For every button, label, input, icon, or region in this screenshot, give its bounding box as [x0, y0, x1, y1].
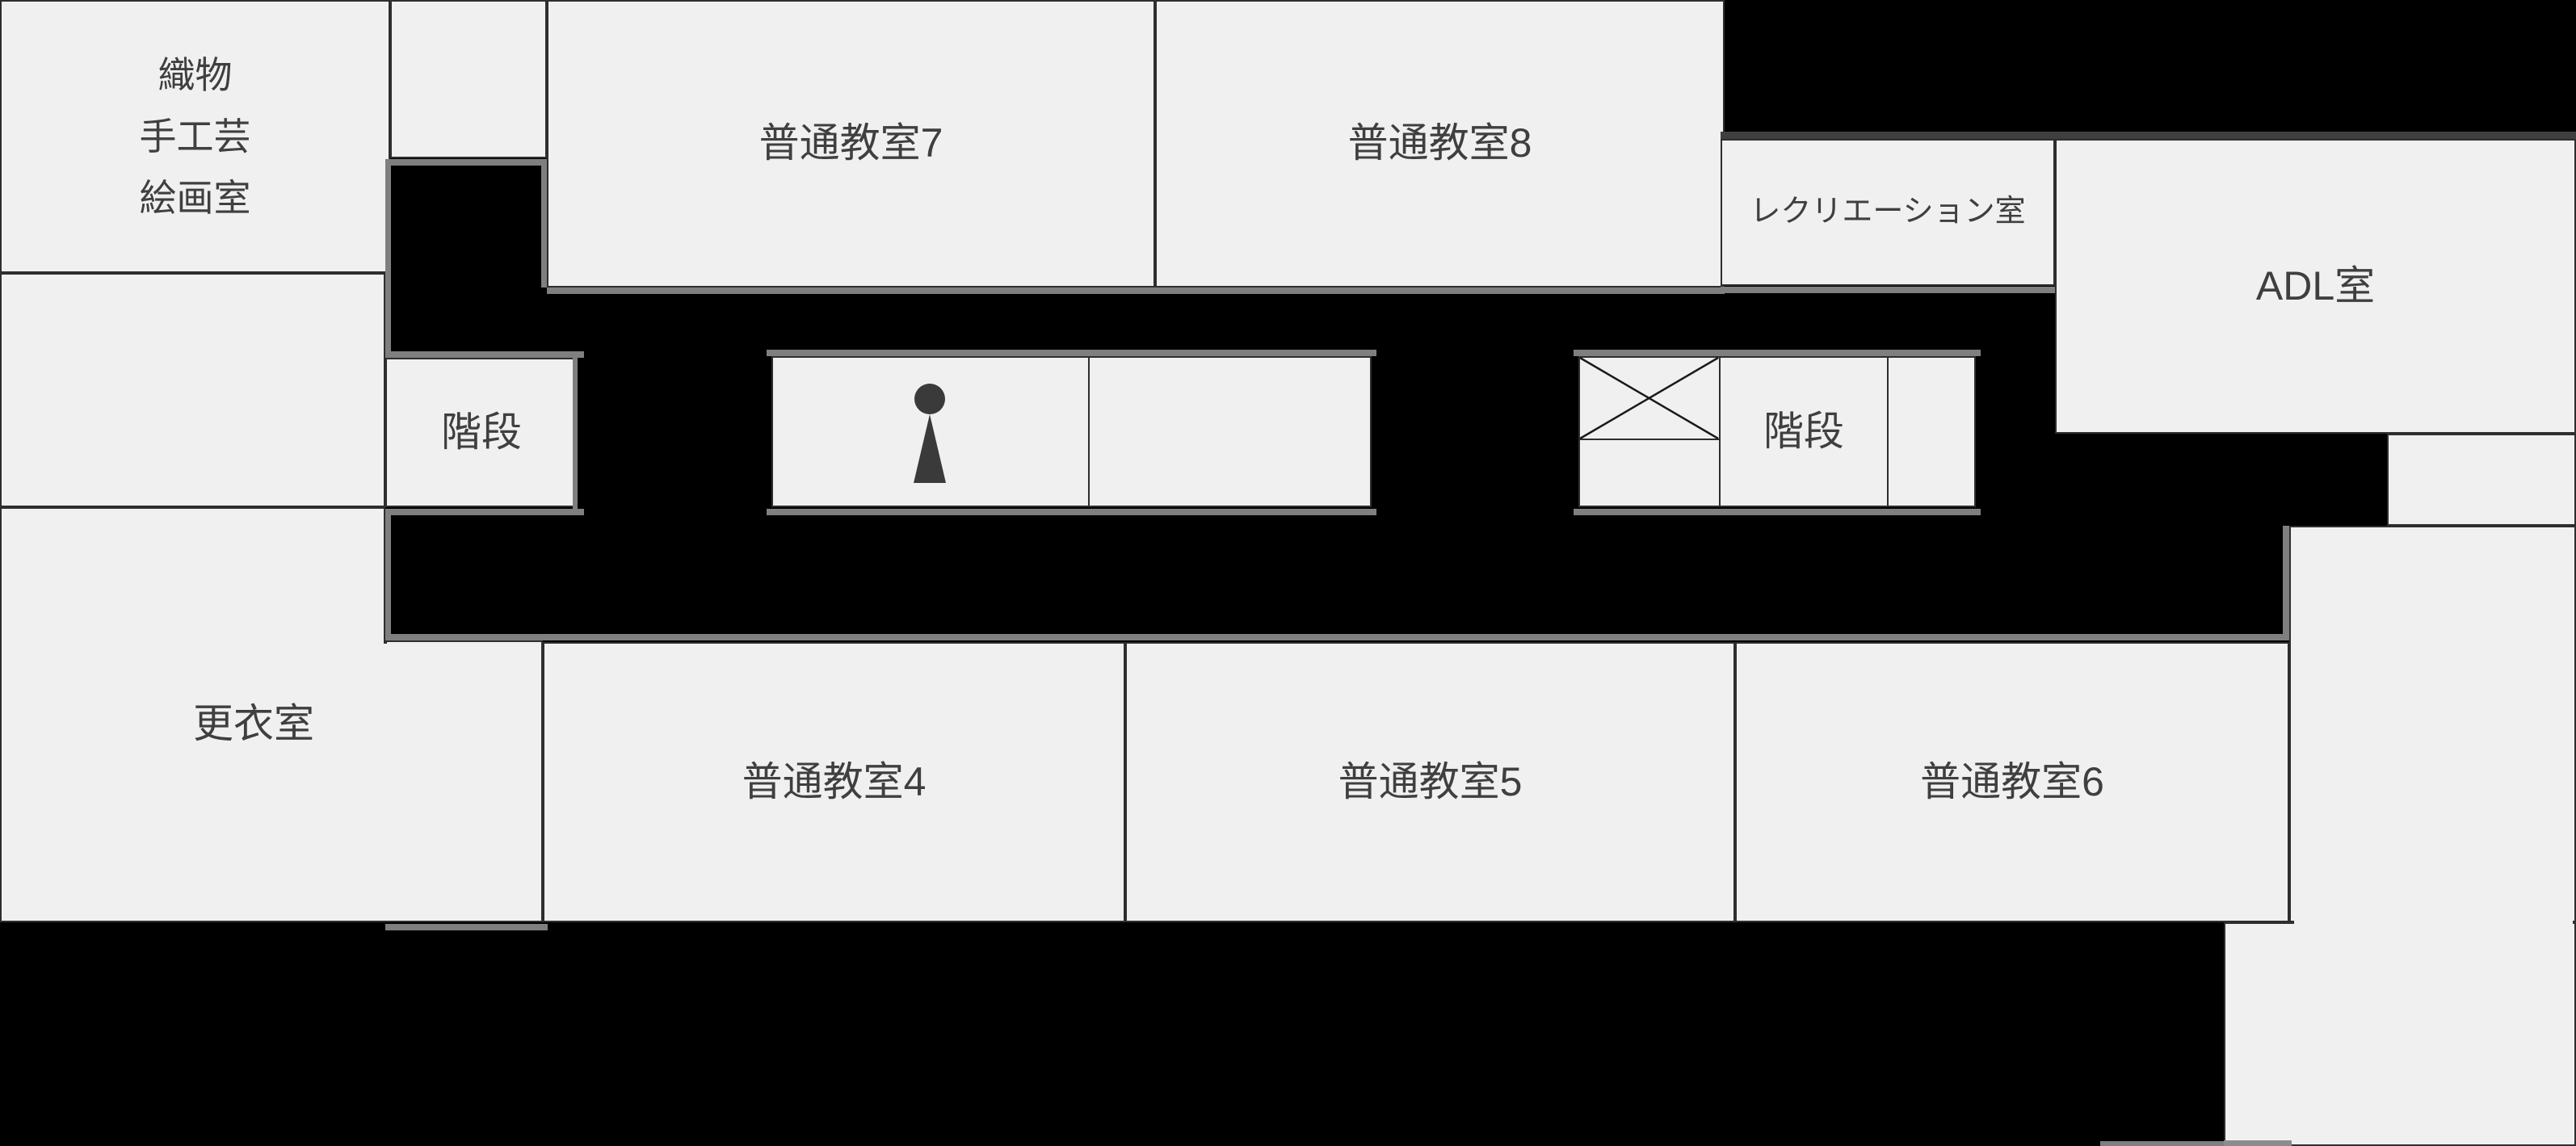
room-classroom-8: 普通教室8	[1155, 0, 1725, 288]
corridor-edge-below-stairs-left	[385, 509, 584, 515]
corridor-edge-above-elevator-block	[1574, 350, 1981, 356]
room-right-column-lower	[2224, 922, 2576, 1146]
person-icon	[771, 356, 1089, 507]
room-adl-label: ADL室	[2256, 263, 2375, 310]
corridor-edge-notch-left	[385, 509, 391, 640]
room-stairs-left: 階段	[385, 358, 578, 507]
room-right-column-upper	[2289, 526, 2576, 922]
room-craft: 織物 手工芸 絵画室	[0, 0, 390, 273]
room-craft-label-line2: 手工芸	[140, 106, 251, 167]
room-changing-ext	[385, 640, 543, 922]
corridor-edge-below-classrooms-7-8	[547, 288, 1725, 294]
room-craft-label: 織物 手工芸 絵画室	[140, 44, 251, 229]
corridor-edge-above-recreation-adl	[1721, 132, 2576, 139]
corridor-edge-above-classrooms-4-5-6	[385, 634, 2289, 640]
room-classroom-4-label: 普通教室4	[742, 759, 927, 806]
corridor-edge-above-toilet	[767, 350, 1376, 356]
room-classroom-7: 普通教室7	[547, 0, 1155, 288]
room-small-box-right	[2387, 434, 2576, 526]
corridor-edge-below-recreation	[1721, 287, 2055, 293]
room-changing-label: 更衣室	[52, 701, 456, 748]
elevator-block-divider-2	[1887, 356, 1889, 507]
room-classroom-5: 普通教室5	[1125, 642, 1735, 922]
right-column-seam-patch	[2294, 919, 2573, 926]
corridor-edge-below-toilet	[767, 509, 1376, 515]
room-adl: ADL室	[2055, 139, 2576, 434]
room-stairs-left-label: 階段	[441, 409, 522, 456]
corridor-edge-right-of-stairs-left	[573, 358, 578, 509]
floor-plan-canvas: 織物 手工芸 絵画室 普通教室7 普通教室8 レクリエーション室 ADL室 階段…	[0, 0, 2576, 1146]
room-blank-left	[0, 273, 385, 507]
room-classroom-7-label: 普通教室7	[759, 120, 943, 167]
room-recreation: レクリエーション室	[1721, 139, 2055, 286]
room-recreation-label: レクリエーション室	[1750, 195, 2025, 230]
corridor-edge-below-changing-ext	[385, 924, 548, 930]
crossed-box-icon	[1578, 356, 1720, 440]
corridor-edge-right-before-column	[2283, 526, 2289, 640]
room-small-box-top	[390, 0, 547, 158]
bottom-edge-highlight-right	[2224, 1140, 2292, 1146]
room-stairs-right-label: 階段	[1720, 409, 1888, 455]
room-craft-label-line3: 絵画室	[140, 167, 251, 229]
corridor-edge-left-column	[385, 159, 391, 351]
bottom-edge-highlight-left	[2100, 1141, 2224, 1146]
changing-room-seam-patch	[381, 644, 389, 921]
room-craft-label-line1: 織物	[140, 44, 251, 106]
room-classroom-6: 普通教室6	[1735, 642, 2289, 922]
room-classroom-4: 普通教室4	[543, 642, 1125, 922]
corridor-edge-right-column	[541, 159, 547, 288]
room-classroom-8-label: 普通教室8	[1348, 120, 1532, 167]
room-classroom-5-label: 普通教室5	[1338, 759, 1523, 806]
room-classroom-6-label: 普通教室6	[1920, 759, 2104, 806]
corridor-edge-below-small-box	[390, 159, 547, 166]
corridor-edge-above-stairs-left	[385, 351, 584, 358]
corridor-edge-below-elevator-block	[1574, 509, 1981, 515]
